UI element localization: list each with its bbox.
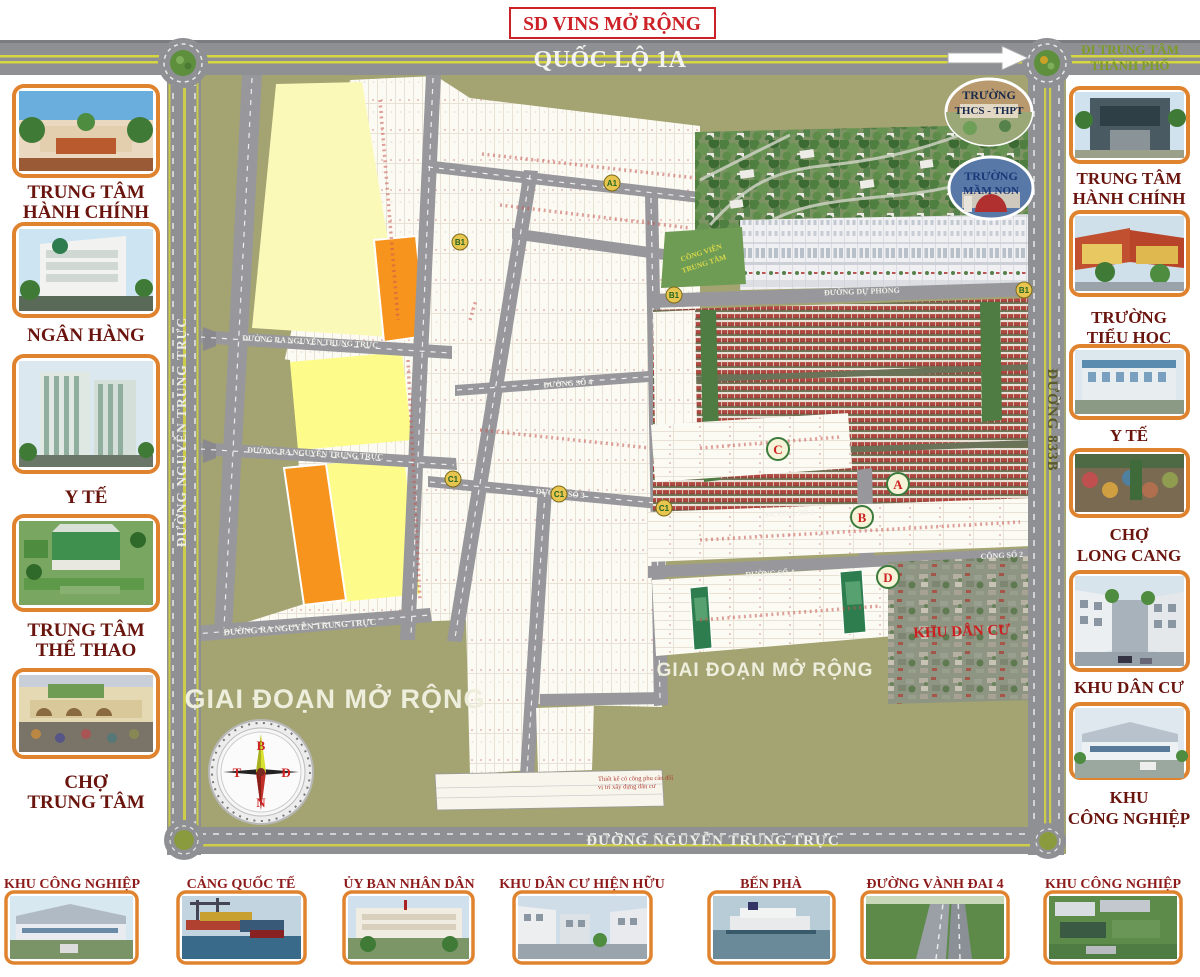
svg-text:D: D xyxy=(883,570,892,585)
svg-text:KHU DÂN CƯ: KHU DÂN CƯ xyxy=(1074,678,1184,697)
svg-text:B1: B1 xyxy=(455,238,466,247)
svg-text:TRUNG TÂM: TRUNG TÂM xyxy=(1077,169,1182,188)
svg-text:B: B xyxy=(257,738,266,753)
svg-text:NGÂN HÀNG: NGÂN HÀNG xyxy=(27,324,145,346)
svg-text:CHỢ: CHỢ xyxy=(64,772,109,793)
svg-text:CẢNG QUỐC TẾ: CẢNG QUỐC TẾ xyxy=(187,874,296,892)
svg-text:ĐI TRUNG TÂM: ĐI TRUNG TÂM xyxy=(1081,42,1179,57)
svg-text:C1: C1 xyxy=(554,490,565,499)
svg-text:C: C xyxy=(773,442,782,457)
svg-text:TRƯỜNG: TRƯỜNG xyxy=(962,88,1016,102)
svg-text:TRUNG TÂM: TRUNG TÂM xyxy=(27,791,144,813)
svg-text:BẾN PHÀ: BẾN PHÀ xyxy=(740,875,803,892)
svg-text:ĐƯỜNG NGUYỄN TRUNG TRỰC: ĐƯỜNG NGUYỄN TRUNG TRỰC xyxy=(174,317,189,547)
svg-text:B: B xyxy=(858,510,867,525)
svg-text:KHU DÂN CƯ HIỆN HỮU: KHU DÂN CƯ HIỆN HỮU xyxy=(499,874,664,892)
svg-text:A: A xyxy=(893,477,903,492)
svg-text:Thiết kế có công phu cân đối: Thiết kế có công phu cân đối xyxy=(598,775,674,783)
svg-text:TRUNG TÂM: TRUNG TÂM xyxy=(27,181,144,203)
svg-text:THCS - THPT: THCS - THPT xyxy=(955,105,1025,117)
svg-text:MẦM NON: MẦM NON xyxy=(963,184,1019,197)
svg-text:THỂ THAO: THỂ THAO xyxy=(36,639,136,661)
svg-text:T: T xyxy=(233,765,242,780)
svg-text:ĐƯỜNG 833B: ĐƯỜNG 833B xyxy=(1044,368,1061,471)
svg-text:HÀNH CHÍNH: HÀNH CHÍNH xyxy=(1073,189,1186,208)
svg-text:ỦY BAN NHÂN DÂN: ỦY BAN NHÂN DÂN xyxy=(343,875,474,892)
svg-text:KHU CÔNG NGHIỆP: KHU CÔNG NGHIỆP xyxy=(1045,875,1182,892)
svg-text:KHU: KHU xyxy=(1110,788,1149,807)
svg-text:ĐƯỜNG NGUYỄN TRUNG TRỰC: ĐƯỜNG NGUYỄN TRUNG TRỰC xyxy=(586,831,839,849)
svg-text:QUỐC LỘ 1A: QUỐC LỘ 1A xyxy=(533,46,686,73)
svg-text:Y TẾ: Y TẾ xyxy=(1110,426,1148,445)
svg-text:THÀNH PHỐ: THÀNH PHỐ xyxy=(1090,58,1169,73)
svg-text:ĐƯỜNG VÀNH ĐAI 4: ĐƯỜNG VÀNH ĐAI 4 xyxy=(866,875,1003,892)
svg-text:CÔNG NGHIỆP: CÔNG NGHIỆP xyxy=(1068,809,1190,828)
svg-text:A1: A1 xyxy=(607,179,618,188)
svg-text:Đ: Đ xyxy=(281,765,290,780)
svg-text:LONG CANG: LONG CANG xyxy=(1077,546,1181,565)
svg-text:KHU CÔNG NGHIỆP: KHU CÔNG NGHIỆP xyxy=(4,875,141,892)
svg-text:KHU DÂN CƯ: KHU DÂN CƯ xyxy=(913,621,1011,641)
svg-text:TRUNG TÂM: TRUNG TÂM xyxy=(27,619,144,641)
svg-text:GIAI ĐOẠN MỞ RỘNG: GIAI ĐOẠN MỞ RỘNG xyxy=(184,682,485,714)
svg-text:GIAI ĐOẠN MỞ RỘNG: GIAI ĐOẠN MỞ RỘNG xyxy=(657,659,874,681)
svg-text:TRƯỜNG: TRƯỜNG xyxy=(1091,308,1167,327)
svg-text:C1: C1 xyxy=(659,504,670,513)
svg-text:TRƯỜNG: TRƯỜNG xyxy=(964,169,1018,183)
svg-text:Y TẾ: Y TẾ xyxy=(65,486,108,508)
svg-text:N: N xyxy=(256,795,266,810)
svg-text:B1: B1 xyxy=(669,291,680,300)
svg-text:B1: B1 xyxy=(1019,286,1030,295)
svg-text:C1: C1 xyxy=(448,475,459,484)
svg-text:HÀNH CHÍNH: HÀNH CHÍNH xyxy=(23,201,149,223)
svg-text:SD VINS MỞ RỘNG: SD VINS MỞ RỘNG xyxy=(523,13,701,35)
svg-text:vị trí xây dựng dân cư: vị trí xây dựng dân cư xyxy=(598,783,656,791)
svg-text:CHỢ: CHỢ xyxy=(1110,525,1150,544)
